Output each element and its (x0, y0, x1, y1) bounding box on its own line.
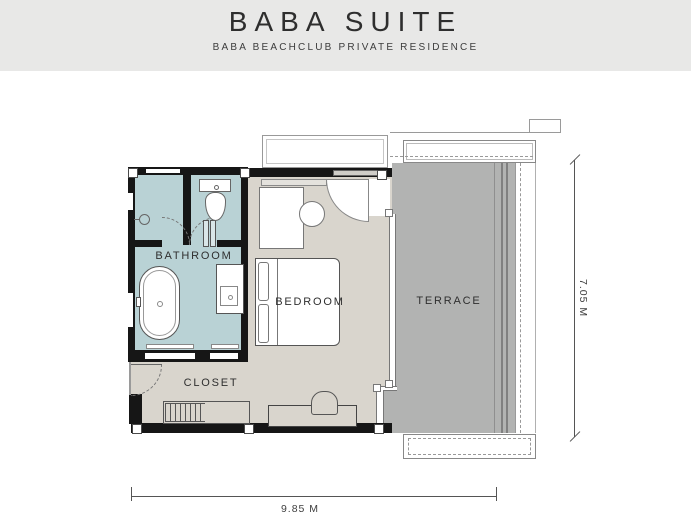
neighbor-line-right (560, 119, 561, 133)
window-notch-left2 (128, 293, 133, 327)
wardrobe-hangers-icon (165, 403, 205, 422)
dimension-height-label: 7.05 M (577, 268, 589, 328)
closet-left-wall (129, 394, 142, 424)
terrace-edge-strip (515, 163, 537, 433)
column-marker-1 (128, 168, 138, 178)
column-marker-5 (244, 424, 254, 434)
roof-line (390, 132, 561, 133)
bathtub-icon (139, 266, 180, 340)
closet-door-leaf (131, 364, 162, 365)
chair-icon (311, 391, 338, 415)
page-title: BABA SUITE (0, 6, 691, 38)
vanity-sink-icon (220, 286, 238, 306)
neighbor-line-left (529, 119, 530, 133)
terrace-edge-line (535, 163, 536, 433)
terrace-deck-line (494, 163, 495, 433)
window-notch-bottom2 (210, 353, 238, 359)
bathroom-door-leaf-1 (203, 220, 209, 247)
bathroom-partition-right (217, 240, 241, 247)
bedroom-label: BEDROOM (270, 296, 350, 308)
glass-joint-marker-2 (385, 380, 393, 388)
column-marker-3 (377, 170, 387, 180)
glass-joint-marker-3 (373, 384, 381, 392)
planter-top (403, 140, 536, 163)
window-sill-1 (261, 179, 327, 186)
towel-bar-1 (146, 344, 194, 349)
column-marker-4 (132, 424, 142, 434)
dimension-tick-bottom (570, 431, 581, 442)
glass-joint-marker-1 (385, 209, 393, 217)
window-notch-bottom1 (145, 353, 195, 359)
window-notch-left1 (128, 193, 133, 210)
shower-stem (134, 219, 139, 220)
page-subtitle: BABA BEACHCLUB PRIVATE RESIDENCE (0, 42, 691, 53)
shower-head-icon (139, 214, 150, 225)
terrace-floor-notch2 (384, 388, 392, 423)
dimension-line-vertical (574, 160, 575, 437)
window-notch-top (146, 169, 180, 173)
dimension-tick-left (131, 487, 132, 501)
terrace-label: TERRACE (409, 295, 489, 307)
terrace-edge-dashed (520, 163, 521, 433)
neighbor-line-top (529, 119, 561, 120)
bed-pillow-2 (258, 304, 269, 343)
bathroom-door-leaf-2 (210, 220, 216, 247)
desk (259, 187, 304, 249)
glass-wall-lower (376, 390, 384, 423)
planter-bottom (403, 434, 536, 459)
bay-box-above-bedroom (262, 135, 388, 168)
planter-top-dashed-line (385, 156, 533, 157)
column-marker-6 (374, 424, 384, 434)
closet-label: CLOSET (171, 377, 251, 389)
toilet-tank-icon (199, 179, 231, 192)
dimension-width-label: 9.85 M (265, 503, 335, 515)
terrace-deck-band (501, 163, 508, 433)
dimension-tick-right (496, 487, 497, 501)
bed-pillow-1 (258, 262, 269, 301)
column-marker-2 (240, 168, 250, 178)
stool-icon (299, 201, 325, 227)
dimension-tick-top (570, 154, 581, 165)
bathroom-partition-left (135, 240, 162, 247)
dimension-line-horizontal (131, 496, 496, 497)
bathroom-label: BATHROOM (154, 250, 234, 262)
bathtub-faucet-icon (136, 297, 141, 307)
glass-wall-upper (389, 214, 396, 386)
towel-bar-2 (211, 344, 239, 349)
wall-window-inset (333, 170, 378, 176)
